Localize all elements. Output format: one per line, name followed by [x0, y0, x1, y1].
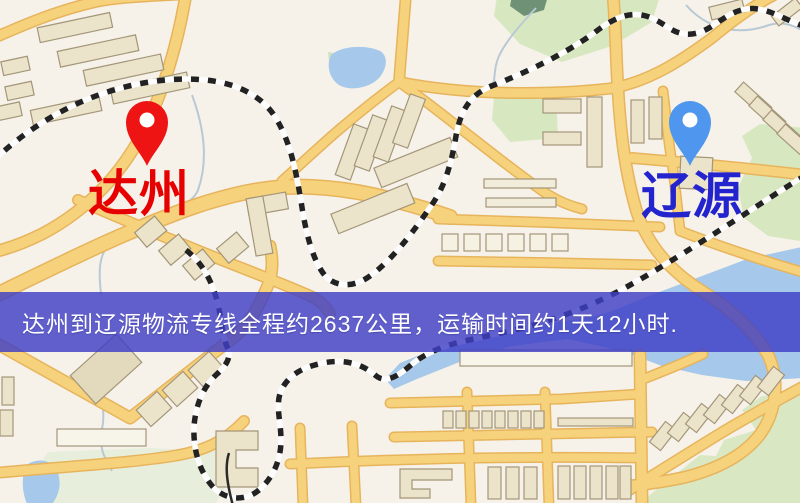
route-info-text: 达州到辽源物流专线全程约2637公里，运输时间约1天12小时.	[0, 305, 678, 339]
logistics-route-map-screenshot: 达州 辽源 达州到辽源物流专线全程约2637公里，运输时间约1天12小时.	[0, 0, 800, 503]
route-info-banner: 达州到辽源物流专线全程约2637公里，运输时间约1天12小时.	[0, 292, 800, 352]
origin-label: 达州	[88, 169, 190, 219]
origin-pin-icon[interactable]	[125, 96, 169, 166]
destination-pin-icon[interactable]	[668, 96, 712, 166]
destination-label: 辽源	[641, 171, 743, 221]
map-canvas[interactable]	[0, 0, 800, 503]
